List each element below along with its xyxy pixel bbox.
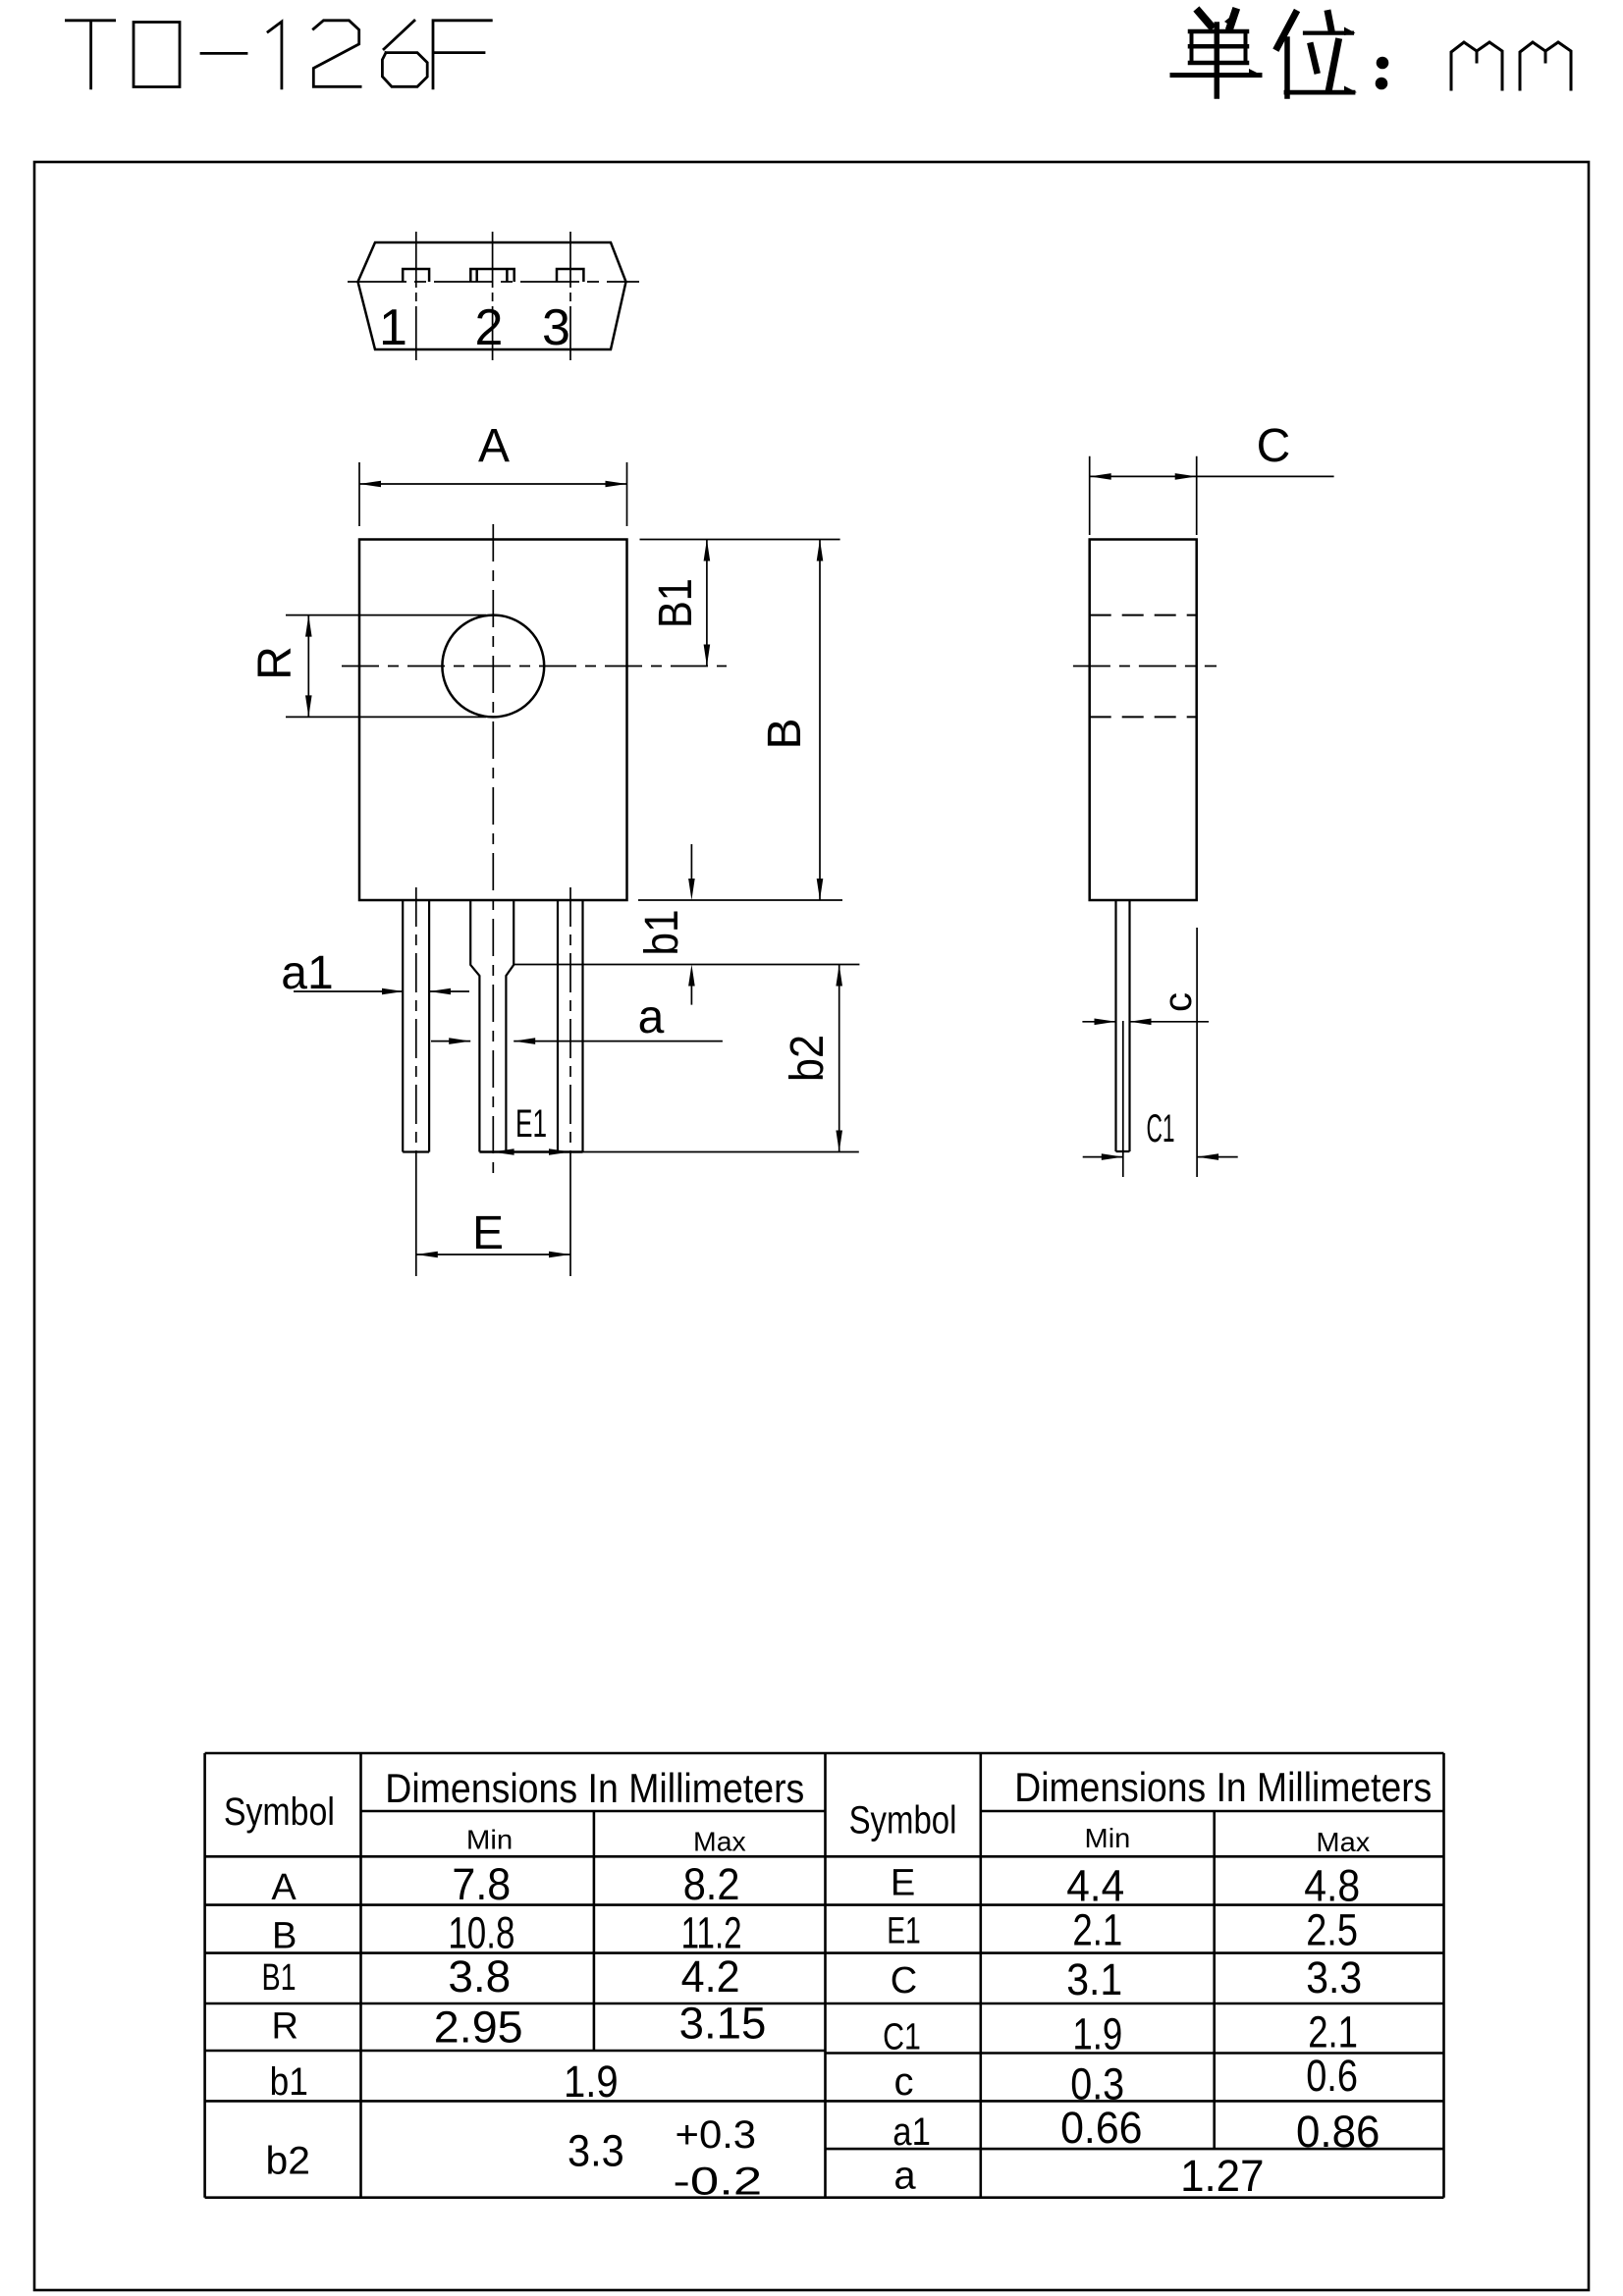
svg-text:A: A [478,420,510,472]
svg-text:a: a [893,2155,916,2198]
svg-text:4.2: 4.2 [681,1951,740,2002]
svg-text:b1: b1 [270,2060,308,2104]
svg-text:3.8: 3.8 [448,1951,511,2002]
svg-text:8.2: 8.2 [683,1859,740,1909]
svg-text:E: E [891,1863,915,1904]
svg-text:0.6: 0.6 [1306,2051,1358,2101]
svg-text:b2: b2 [782,1035,834,1082]
svg-text:b1: b1 [636,910,688,956]
svg-text:Dimensions In Millimeters: Dimensions In Millimeters [1014,1764,1432,1810]
svg-text:Max: Max [693,1827,746,1857]
svg-text:3.3: 3.3 [568,2125,624,2175]
svg-text:2: 2 [475,299,504,356]
svg-text:-0.2: -0.2 [673,2160,762,2203]
svg-text:4.4: 4.4 [1066,1861,1124,1911]
svg-text:2.95: 2.95 [434,2002,523,2053]
svg-text:Min: Min [1085,1823,1131,1853]
svg-text:1.27: 1.27 [1180,2151,1264,2201]
svg-text:3.1: 3.1 [1066,1954,1122,2004]
svg-text:2.1: 2.1 [1072,1904,1122,1954]
svg-text:c: c [1157,992,1200,1012]
svg-text:0.3: 0.3 [1070,2058,1124,2109]
svg-text:B1: B1 [261,1957,296,1999]
svg-text:+0.3: +0.3 [676,2113,757,2157]
svg-text:Symbol: Symbol [849,1799,957,1842]
svg-text:a1: a1 [893,2110,931,2154]
svg-text:Dimensions In Millimeters: Dimensions In Millimeters [385,1765,804,1811]
svg-text:B1: B1 [650,578,702,628]
svg-text:1.9: 1.9 [1072,2008,1122,2058]
svg-text:a1: a1 [281,947,333,999]
svg-text:3.15: 3.15 [679,1998,767,2048]
svg-text:C: C [1257,420,1291,472]
svg-text:E: E [472,1207,504,1259]
svg-text:C1: C1 [1147,1107,1175,1150]
svg-text:C: C [891,1960,917,2002]
svg-text:a: a [638,991,665,1043]
svg-text:0.86: 0.86 [1296,2107,1380,2157]
svg-text:3.3: 3.3 [1306,1952,1362,2002]
svg-text:2.5: 2.5 [1306,1904,1358,1954]
svg-text:Max: Max [1316,1827,1370,1857]
svg-text:B: B [759,718,811,749]
svg-text:Symbol: Symbol [224,1790,335,1834]
svg-text:4.8: 4.8 [1304,1861,1360,1911]
svg-text:1.9: 1.9 [564,2056,619,2107]
svg-text:0.66: 0.66 [1060,2103,1142,2153]
svg-text:3: 3 [542,299,570,356]
svg-text:1: 1 [379,299,407,356]
svg-text:E1: E1 [515,1102,547,1146]
svg-text:C1: C1 [883,2016,921,2057]
svg-text:B: B [272,1916,297,1957]
svg-text:Min: Min [466,1825,513,1855]
svg-text:R: R [271,2005,298,2047]
svg-text:R: R [249,646,301,680]
svg-text:2.1: 2.1 [1308,2006,1358,2056]
svg-text:E1: E1 [887,1910,921,1951]
svg-text:A: A [271,1867,297,1908]
svg-text:b2: b2 [266,2140,310,2183]
svg-text:7.8: 7.8 [452,1859,511,1909]
svg-text:c: c [894,2060,914,2104]
